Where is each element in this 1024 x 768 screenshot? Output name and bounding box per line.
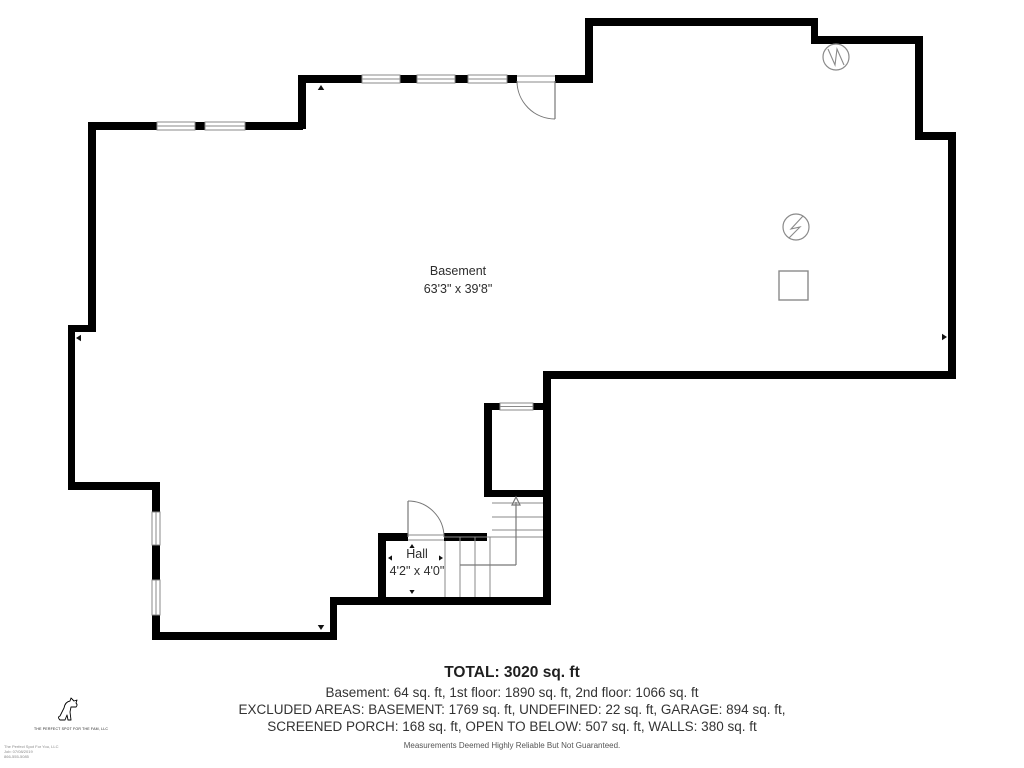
wall-segment xyxy=(455,75,468,83)
dog-logo-icon xyxy=(54,697,84,721)
room-dims: 4'2" x 4'0" xyxy=(390,563,445,580)
dimension-arrow-icon xyxy=(318,85,325,90)
wall-segment xyxy=(543,371,551,605)
wall-segment xyxy=(245,122,303,130)
room-dimensions-basement: 63'3" x 39'8" xyxy=(424,281,493,298)
excluded-areas-text-2: SCREENED PORCH: 168 sq. ft, OPEN TO BELO… xyxy=(0,719,1024,734)
floor-areas-text: Basement: 64 sq. ft, 1st floor: 1890 sq.… xyxy=(0,685,1024,700)
total-area-text: TOTAL: 3020 sq. ft xyxy=(0,664,1024,682)
wall-segment xyxy=(88,122,157,130)
wall-segment xyxy=(88,122,96,332)
disclaimer-text: Measurements Deemed Highly Reliable But … xyxy=(0,741,1024,750)
wall-segment xyxy=(152,545,160,580)
dimension-arrow-icon xyxy=(388,555,392,560)
company-name: THE PERFECT SPOT FOR THE FAM, LLC xyxy=(34,727,104,731)
dimension-arrow-icon xyxy=(318,625,325,630)
wall-segment xyxy=(585,18,818,26)
wall-segment xyxy=(484,403,500,410)
wall-segment xyxy=(378,533,386,605)
footnote-line: 866-555-5085 xyxy=(4,754,58,759)
wall-segment xyxy=(555,75,593,83)
room-label-basement: Basement xyxy=(430,263,486,280)
excluded-areas-text: EXCLUDED AREAS: BASEMENT: 1769 sq. ft, U… xyxy=(0,702,1024,717)
wall-segment xyxy=(298,75,362,83)
room-label-hall: Hall xyxy=(406,546,428,563)
wall-segment xyxy=(585,18,593,83)
floor-plan-page: Basement 63'3" x 39'8" Hall 4'2" x 4'0" … xyxy=(0,0,1024,768)
corner-footnote: The Perfect Spot For You, LLC Job: 07/08… xyxy=(4,744,58,759)
room-name: Basement xyxy=(430,263,486,280)
wall-segment xyxy=(915,36,923,139)
wall-segment xyxy=(298,75,306,129)
wall-segment xyxy=(378,533,408,541)
wall-segment xyxy=(484,403,492,497)
company-logo: THE PERFECT SPOT FOR THE FAM, LLC xyxy=(34,697,104,731)
wall-segment xyxy=(948,132,956,379)
dimension-arrow-icon xyxy=(439,555,443,560)
wall-segment xyxy=(484,490,543,497)
wall-segment xyxy=(68,482,160,490)
door-swing-arc xyxy=(408,501,444,537)
wall-segment xyxy=(195,122,205,130)
room-name: Hall xyxy=(406,546,428,563)
wall-segment xyxy=(543,371,956,379)
wall-segment xyxy=(330,597,551,605)
wall-segment xyxy=(507,75,517,83)
wall-segment xyxy=(811,36,923,44)
utility-meter-symbol-glyph xyxy=(828,49,844,65)
wall-segment xyxy=(533,403,543,410)
wall-segment xyxy=(152,632,337,640)
dimension-arrow-icon xyxy=(942,334,947,341)
room-dims: 63'3" x 39'8" xyxy=(424,281,493,298)
fixture-square-symbol xyxy=(779,271,808,300)
wall-segment xyxy=(68,325,75,490)
wall-segment xyxy=(152,482,160,512)
basement-floor-plan xyxy=(0,0,1024,768)
electrical-panel-symbol xyxy=(783,214,809,240)
dimension-arrow-icon xyxy=(76,335,81,342)
wall-segment xyxy=(400,75,417,83)
door-swing-arc xyxy=(517,81,555,119)
room-dimensions-hall: 4'2" x 4'0" xyxy=(390,563,445,580)
electrical-panel-symbol-glyph xyxy=(789,216,803,238)
dimension-arrow-icon xyxy=(409,590,414,594)
